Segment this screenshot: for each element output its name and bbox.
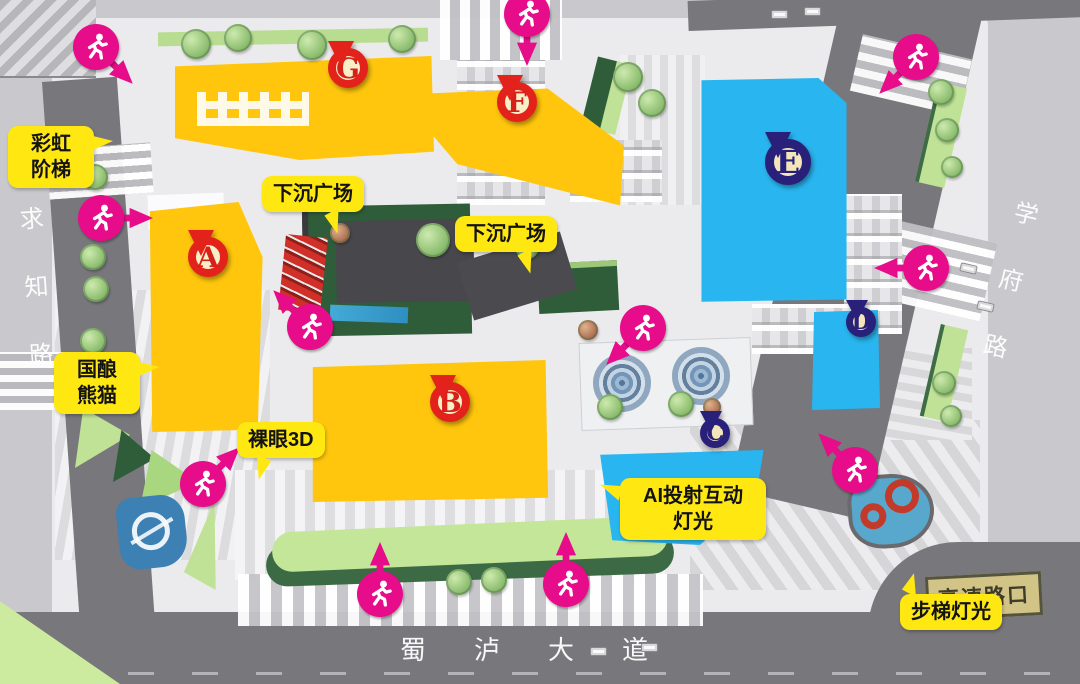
tree [181,29,211,59]
building-g [175,56,434,160]
pin-tail [430,375,456,401]
tree [638,89,666,117]
tree [668,391,694,417]
tree [83,276,109,302]
globe-sculpture [114,493,189,572]
car [804,7,821,16]
tree [935,118,959,142]
tree [446,569,472,595]
pin-tail [765,132,791,158]
tree [613,62,643,92]
label-rainbow-stairs: 彩虹 阶梯 [8,126,94,188]
building-b [308,360,548,502]
tree [928,79,954,105]
tree [80,328,106,354]
tree [940,405,962,427]
car [590,647,607,656]
pin-tail [497,75,523,101]
pin-tail [846,300,868,321]
label-sunken-plaza-2: 下沉广场 [455,216,557,252]
tree [932,371,956,395]
tree [941,156,963,178]
label-stair-light: 步梯灯光 [900,594,1002,630]
label-guoniang-panda: 国酿 熊猫 [54,352,140,414]
site-map: 求知路 学府路 蜀泸大道 [0,0,1080,684]
lane-marking [0,672,1080,675]
pin-tail [700,411,722,432]
label-naked-eye-3d: 裸眼3D [237,422,325,458]
tree [416,223,450,257]
plaza-building [335,219,474,303]
bush [578,320,598,340]
tree [224,24,252,52]
tree [481,567,507,593]
tree [388,25,416,53]
pin-tail [188,230,214,256]
car [641,643,658,652]
label-sunken-plaza-1: 下沉广场 [262,176,364,212]
tree [597,394,623,420]
pin-tail [328,41,354,67]
building-e [700,78,848,304]
label-ai-projection-light: AI投射互动 灯光 [620,478,766,540]
tree [80,244,106,270]
water-feature [330,305,409,324]
car [771,10,788,19]
tree [297,30,327,60]
